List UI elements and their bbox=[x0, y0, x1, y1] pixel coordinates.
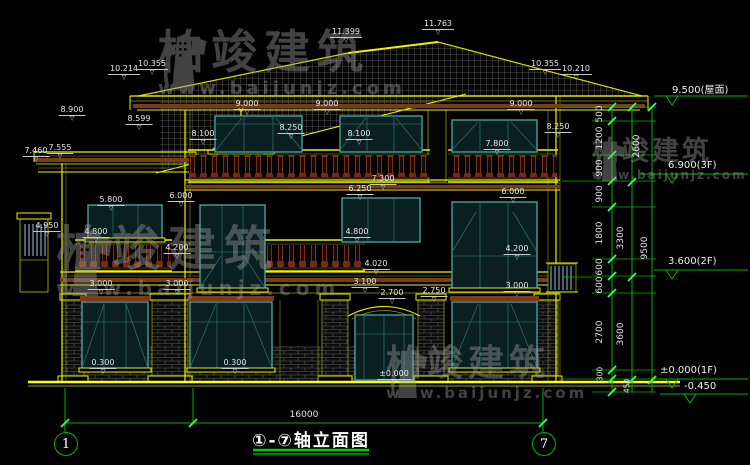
dim-chain-value: 3300 bbox=[616, 227, 626, 250]
elevation-marker-label: ±0.000(1F) bbox=[660, 365, 717, 376]
overall-width-dimension: 16000 bbox=[290, 410, 319, 420]
dim-chain-value: 2600 bbox=[632, 135, 642, 158]
dim-chain-value: 600 bbox=[595, 276, 605, 293]
dim-chain-value: 500 bbox=[595, 105, 605, 122]
entrance-door bbox=[348, 307, 420, 381]
dim-chain-value: 600 bbox=[595, 258, 605, 275]
elevation-marker-label: -0.450 bbox=[684, 381, 716, 392]
dim-chain-value: 1200 bbox=[595, 127, 605, 150]
cad-elevation-screenshot: 柏竣建筑 www.baijunjz.com 柏竣建筑 www.baijunjz.… bbox=[0, 0, 750, 465]
dim-chain-value: 2700 bbox=[595, 321, 605, 344]
axis-bubble-1: 1 bbox=[54, 432, 78, 456]
elevation-marker-label: 3.600(2F) bbox=[668, 256, 717, 267]
dim-chain-value: 9500 bbox=[640, 237, 650, 260]
axis-bubble-7: 7 bbox=[532, 432, 556, 456]
drawing-title: ①-⑦轴立面图 bbox=[252, 426, 370, 451]
dim-chain-value: 900 bbox=[595, 185, 605, 202]
dim-chain-value: 1800 bbox=[595, 222, 605, 245]
side-railing bbox=[546, 263, 578, 292]
elevation-linework bbox=[0, 0, 750, 465]
elevation-marker-label: 9.500(屋面) bbox=[672, 81, 728, 96]
elevation-marker-label: 6.900(3F) bbox=[668, 160, 717, 171]
dim-chain-value: 3600 bbox=[616, 323, 626, 346]
dim-chain-value: 300 bbox=[596, 367, 605, 381]
left-bay bbox=[17, 213, 51, 292]
dim-chain-value: 450 bbox=[623, 379, 632, 393]
dim-chain-value: 900 bbox=[595, 159, 605, 176]
ground-line bbox=[28, 382, 680, 386]
